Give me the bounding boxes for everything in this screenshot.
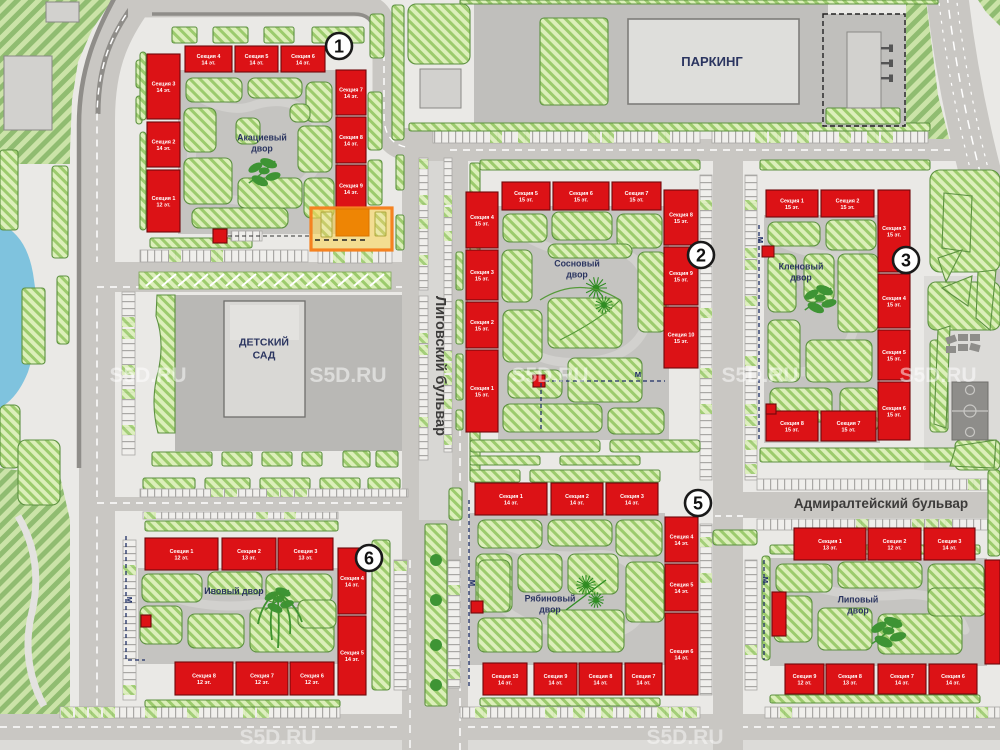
svg-text:S5D.RU: S5D.RU	[109, 364, 186, 387]
svg-text:Секция 8: Секция 8	[780, 421, 804, 427]
svg-text:Секция 5: Секция 5	[340, 651, 364, 657]
svg-text:14 эт.: 14 эт.	[249, 61, 264, 67]
svg-text:Секция 9: Секция 9	[669, 271, 693, 277]
svg-text:ДЕТСКИЙ: ДЕТСКИЙ	[239, 335, 289, 348]
svg-text:Секция 2: Секция 2	[836, 199, 860, 205]
svg-text:Секция 2: Секция 2	[883, 539, 907, 545]
svg-text:14 эт.: 14 эт.	[674, 589, 689, 595]
svg-text:15 эт.: 15 эт.	[475, 327, 490, 333]
svg-text:S5D.RU: S5D.RU	[721, 364, 798, 387]
svg-text:Секция 4: Секция 4	[470, 215, 494, 221]
svg-text:S5D.RU: S5D.RU	[239, 726, 316, 749]
svg-text:Секция 7: Секция 7	[250, 674, 274, 680]
svg-text:6: 6	[364, 549, 374, 569]
svg-text:12 эт.: 12 эт.	[797, 681, 812, 687]
svg-text:ПАРКИНГ: ПАРКИНГ	[681, 54, 743, 69]
svg-text:12 эт.: 12 эт.	[197, 680, 212, 686]
svg-text:14 эт.: 14 эт.	[504, 501, 519, 507]
svg-text:15 эт.: 15 эт.	[785, 428, 800, 434]
svg-text:14 эт.: 14 эт.	[593, 681, 608, 687]
svg-text:15 эт.: 15 эт.	[785, 205, 800, 211]
svg-text:15 эт.: 15 эт.	[887, 303, 902, 309]
svg-text:Секция 7: Секция 7	[339, 88, 363, 94]
svg-text:м: м	[761, 577, 771, 584]
svg-text:Сосновый: Сосновый	[554, 259, 600, 269]
svg-text:14 эт.: 14 эт.	[201, 61, 216, 67]
svg-text:Секция 6: Секция 6	[300, 674, 324, 680]
svg-text:15 эт.: 15 эт.	[475, 277, 490, 283]
svg-text:14 эт.: 14 эт.	[156, 88, 171, 94]
svg-text:Липовый: Липовый	[838, 595, 879, 605]
svg-text:Кленовый: Кленовый	[779, 262, 824, 272]
svg-text:Секция 5: Секция 5	[882, 350, 906, 356]
svg-text:15 эт.: 15 эт.	[475, 393, 490, 399]
svg-text:14 эт.: 14 эт.	[548, 681, 563, 687]
svg-text:Секция 9: Секция 9	[339, 184, 363, 190]
svg-text:12 эт.: 12 эт.	[887, 546, 902, 552]
svg-text:12 эт.: 12 эт.	[305, 680, 320, 686]
svg-text:Адмиралтейский бульвар: Адмиралтейский бульвар	[794, 496, 968, 511]
svg-text:15 эт.: 15 эт.	[674, 219, 689, 225]
svg-text:Секция 5: Секция 5	[670, 583, 694, 589]
svg-text:1: 1	[334, 37, 344, 57]
svg-text:14 эт.: 14 эт.	[498, 681, 513, 687]
svg-text:14 эт.: 14 эт.	[674, 656, 689, 662]
svg-text:двор: двор	[790, 272, 812, 282]
svg-text:14 эт.: 14 эт.	[636, 681, 651, 687]
svg-text:Секция 7: Секция 7	[632, 674, 656, 680]
svg-text:Ивовый двор: Ивовый двор	[204, 586, 264, 596]
svg-text:Секция 6: Секция 6	[291, 54, 315, 60]
svg-text:14 эт.: 14 эт.	[344, 190, 359, 196]
svg-text:Секция 4: Секция 4	[340, 576, 364, 582]
svg-text:15 эт.: 15 эт.	[841, 428, 856, 434]
svg-text:Секция 3: Секция 3	[938, 539, 962, 545]
svg-text:15 эт.: 15 эт.	[674, 278, 689, 284]
svg-text:Секция 3: Секция 3	[882, 226, 906, 232]
svg-text:Секция 4: Секция 4	[670, 535, 694, 541]
svg-text:13 эт.: 13 эт.	[823, 546, 838, 552]
svg-text:м: м	[635, 369, 642, 379]
svg-text:Секция 5: Секция 5	[514, 191, 538, 197]
svg-text:двор: двор	[539, 604, 561, 614]
svg-text:S5D.RU: S5D.RU	[309, 364, 386, 387]
svg-text:Секция 10: Секция 10	[668, 333, 695, 339]
svg-text:14 эт.: 14 эт.	[942, 546, 957, 552]
svg-text:14 эт.: 14 эт.	[946, 681, 961, 687]
svg-text:13 эт.: 13 эт.	[242, 556, 257, 562]
svg-text:12 эт.: 12 эт.	[174, 556, 189, 562]
svg-text:S5D.RU: S5D.RU	[511, 364, 588, 387]
svg-text:14 эт.: 14 эт.	[674, 541, 689, 547]
svg-text:Секция 3: Секция 3	[152, 82, 176, 88]
svg-text:14 эт.: 14 эт.	[895, 681, 910, 687]
svg-text:Секция 2: Секция 2	[237, 549, 261, 555]
svg-text:Секция 3: Секция 3	[470, 270, 494, 276]
svg-text:Секция 8: Секция 8	[838, 674, 862, 680]
svg-text:м: м	[125, 597, 135, 604]
svg-text:12 эт.: 12 эт.	[156, 203, 171, 209]
svg-text:м: м	[468, 580, 478, 587]
svg-text:Секция 2: Секция 2	[565, 494, 589, 500]
svg-text:12 эт.: 12 эт.	[255, 680, 270, 686]
svg-text:15 эт.: 15 эт.	[887, 357, 902, 363]
svg-text:14 эт.: 14 эт.	[345, 657, 360, 663]
svg-text:14 эт.: 14 эт.	[344, 94, 359, 100]
svg-text:15 эт.: 15 эт.	[629, 198, 644, 204]
svg-text:15 эт.: 15 эт.	[840, 205, 855, 211]
svg-text:14 эт.: 14 эт.	[344, 142, 359, 148]
svg-text:Секция 8: Секция 8	[192, 674, 216, 680]
svg-text:Секция 6: Секция 6	[941, 674, 965, 680]
svg-text:14 эт.: 14 эт.	[570, 501, 585, 507]
svg-text:Секция 2: Секция 2	[470, 320, 494, 326]
svg-text:Секция 4: Секция 4	[197, 54, 221, 60]
svg-text:Секция 5: Секция 5	[245, 54, 269, 60]
svg-text:двор: двор	[566, 269, 588, 279]
svg-text:Секция 3: Секция 3	[294, 549, 318, 555]
svg-text:Секция 1: Секция 1	[152, 196, 176, 202]
svg-text:14 эт.: 14 эт.	[296, 61, 311, 67]
svg-text:15 эт.: 15 эт.	[887, 413, 902, 419]
svg-text:Секция 10: Секция 10	[492, 674, 519, 680]
svg-text:15 эт.: 15 эт.	[475, 222, 490, 228]
svg-text:15 эт.: 15 эт.	[674, 339, 689, 345]
svg-text:Секция 6: Секция 6	[670, 649, 694, 655]
svg-text:Секция 1: Секция 1	[499, 494, 523, 500]
svg-text:Секция 7: Секция 7	[890, 674, 914, 680]
svg-text:Секция 9: Секция 9	[544, 674, 568, 680]
svg-text:Секция 4: Секция 4	[882, 296, 906, 302]
svg-text:Секция 1: Секция 1	[470, 386, 494, 392]
svg-text:15 эт.: 15 эт.	[887, 233, 902, 239]
svg-text:двор: двор	[251, 143, 273, 153]
svg-text:14 эт.: 14 эт.	[625, 501, 640, 507]
svg-text:Секция 1: Секция 1	[170, 549, 194, 555]
svg-text:S5D.RU: S5D.RU	[646, 726, 723, 749]
svg-text:Секция 2: Секция 2	[152, 140, 176, 146]
svg-text:2: 2	[696, 246, 706, 266]
svg-text:S5D.RU: S5D.RU	[899, 364, 976, 387]
svg-text:Секция 8: Секция 8	[669, 213, 693, 219]
svg-text:Секция 8: Секция 8	[339, 135, 363, 141]
svg-text:САД: САД	[253, 349, 276, 361]
svg-text:Акациевый: Акациевый	[237, 133, 287, 143]
svg-text:15 эт.: 15 эт.	[519, 198, 534, 204]
svg-text:Секция 7: Секция 7	[837, 421, 861, 427]
svg-text:Секция 1: Секция 1	[780, 199, 804, 205]
svg-text:14 эт.: 14 эт.	[345, 583, 360, 589]
svg-text:Лиговский бульвар: Лиговский бульвар	[432, 296, 448, 436]
svg-text:5: 5	[693, 494, 703, 514]
svg-text:Секция 6: Секция 6	[569, 191, 593, 197]
svg-text:Секция 7: Секция 7	[625, 191, 649, 197]
svg-text:Секция 1: Секция 1	[818, 539, 842, 545]
svg-text:Секция 9: Секция 9	[793, 674, 817, 680]
svg-text:Секция 8: Секция 8	[589, 674, 613, 680]
svg-text:Секция 3: Секция 3	[620, 494, 644, 500]
svg-text:14 эт.: 14 эт.	[156, 146, 171, 152]
svg-text:Рябиновый: Рябиновый	[525, 594, 576, 604]
svg-text:3: 3	[901, 251, 911, 271]
svg-text:Секция 6: Секция 6	[882, 406, 906, 412]
svg-text:15 эт.: 15 эт.	[574, 198, 589, 204]
svg-text:13 эт.: 13 эт.	[843, 681, 858, 687]
svg-text:м: м	[756, 237, 766, 244]
svg-text:13 эт.: 13 эт.	[298, 556, 313, 562]
svg-text:двор: двор	[847, 605, 869, 615]
